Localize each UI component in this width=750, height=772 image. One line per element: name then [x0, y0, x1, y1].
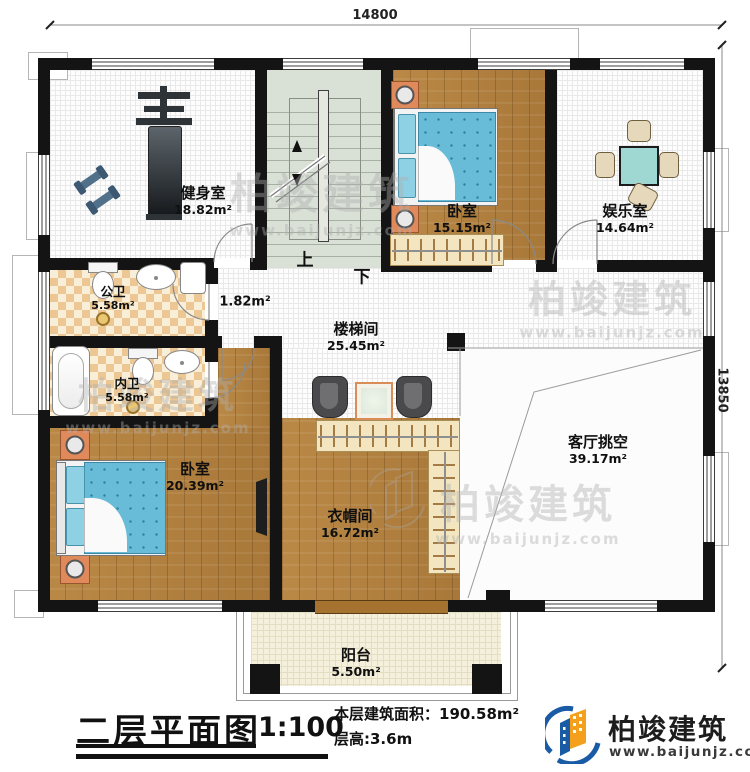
plan-scale: 1:100	[258, 712, 344, 743]
room-name: 衣帽间	[321, 508, 379, 526]
room-name: 娱乐室	[596, 203, 654, 221]
game-table	[619, 146, 659, 186]
nightstand	[391, 205, 419, 233]
window-bay-top	[478, 58, 570, 70]
room-label-bedroom-main: 卧室 20.39m²	[166, 461, 224, 493]
tv-icon	[256, 478, 267, 536]
lamp-icon	[96, 312, 110, 326]
brand-name-text: 柏竣建筑	[608, 713, 728, 746]
wall-gym-bottom-b	[250, 258, 267, 270]
column-corridor-void	[447, 333, 465, 351]
window-gym-top	[92, 58, 214, 70]
stair-down-label: 下	[354, 263, 371, 288]
brand-site-text: www.baijunjz.com	[609, 744, 750, 760]
lounge-chair	[312, 376, 348, 418]
wall-privbath-right-a	[205, 348, 218, 362]
window-ent-top	[600, 58, 684, 70]
room-label-public-bath: 公卫 5.58m²	[91, 285, 134, 313]
wall-pubbath-right-b	[205, 320, 218, 336]
room-area: 16.72m²	[321, 525, 379, 540]
bay-window-top	[470, 28, 579, 62]
pillow	[66, 466, 85, 504]
title-underline-2	[76, 754, 328, 759]
balcony-door-threshold	[315, 600, 448, 614]
title-underline-1	[76, 744, 256, 748]
dim-tick	[718, 21, 726, 29]
room-area: 5.50m²	[331, 664, 380, 679]
dim-tick	[718, 41, 726, 49]
treadmill-bar-1	[138, 92, 190, 99]
room-name: 健身室	[174, 185, 232, 203]
pillow	[398, 114, 416, 154]
room-name: 卧室	[433, 203, 491, 221]
floor-height-text: 层高:3.6m	[334, 730, 412, 748]
wall-bedroom-ent	[545, 70, 557, 272]
window-void-bottom	[545, 600, 657, 612]
room-label-hall-nook: 1.82m²	[219, 294, 270, 309]
lounge-chair	[396, 376, 432, 418]
room-label-bedroom-top: 卧室 15.15m²	[433, 203, 491, 235]
window-sill-right-void	[713, 452, 729, 546]
room-name: 卧室	[166, 461, 224, 479]
floor-area-info: 本层建筑面积：190.58m²	[334, 703, 519, 724]
dim-tick	[718, 664, 726, 672]
room-area: 1.82m²	[219, 294, 270, 309]
pillow	[398, 158, 416, 198]
floor-plan-canvas: 上 下	[0, 0, 750, 772]
column-balcony-left	[250, 664, 280, 694]
room-label-balcony: 阳台 5.50m²	[331, 647, 380, 679]
room-name: 公卫	[91, 285, 134, 300]
closet-bedroom-top	[390, 234, 504, 266]
window-ent-right	[703, 152, 715, 228]
room-label-gym: 健身室 18.82m²	[174, 185, 232, 217]
closet-rail	[318, 436, 458, 438]
room-label-cloakroom: 衣帽间 16.72m²	[321, 508, 379, 540]
dim-height-text: 13850	[715, 367, 730, 412]
plan-scale-text: 1:100	[258, 712, 344, 743]
window-void-right	[703, 456, 715, 542]
dim-width-text: 14800	[352, 8, 397, 23]
sink-icon	[136, 264, 176, 290]
room-name: 楼梯间	[327, 321, 385, 339]
window-bath-left	[38, 272, 50, 410]
wall-hall-top-a	[205, 336, 222, 348]
room-label-stair-hall: 楼梯间 25.45m²	[327, 321, 385, 353]
wall-privbath-right-b	[205, 398, 218, 416]
dimension-height-label: 13850	[715, 367, 730, 412]
wall-hall-corridor	[270, 348, 282, 418]
window-stairs-top	[283, 58, 363, 70]
side-table	[355, 382, 393, 420]
dim-tick	[46, 21, 54, 29]
stair-up-label: 上	[297, 246, 314, 271]
stair-up-text: 上	[297, 251, 314, 271]
chair	[595, 152, 615, 178]
bathtub-icon	[52, 346, 90, 416]
chair	[627, 120, 651, 142]
window-corridor-right	[703, 282, 715, 336]
room-name: 内卫	[105, 377, 148, 392]
wall-pubbath-right-a	[205, 268, 218, 284]
room-area: 18.82m²	[174, 202, 232, 217]
bidet-icon	[180, 262, 206, 294]
wall-hall-top-b	[254, 336, 282, 348]
column-bottom-void	[486, 590, 510, 612]
room-area: 5.58m²	[91, 300, 134, 313]
window-gym-left	[38, 155, 50, 235]
room-label-entertainment: 娱乐室 14.64m²	[596, 203, 654, 235]
floor-living-void	[460, 348, 703, 602]
bed-headboard	[56, 462, 66, 554]
nightstand	[60, 430, 90, 460]
room-area: 20.39m²	[166, 478, 224, 493]
wall-gym-stairs	[255, 70, 267, 268]
room-area: 14.64m²	[596, 220, 654, 235]
column-balcony-right	[472, 664, 502, 694]
brand-logo-icon	[545, 702, 603, 764]
treadmill-bar-2	[144, 106, 184, 112]
brand-name: 柏竣建筑	[608, 708, 728, 748]
wall-bath-bedroom	[38, 416, 218, 428]
treadmill-bar-3	[136, 118, 192, 125]
floor-area-text: 本层建筑面积：190.58m²	[334, 705, 519, 723]
nightstand	[60, 554, 90, 584]
nightstand	[391, 81, 419, 109]
floor-height-info: 层高:3.6m	[334, 728, 412, 749]
floor-hall-strip	[218, 348, 270, 428]
cloak-rack-top	[316, 420, 460, 452]
room-area: 5.58m²	[105, 392, 148, 405]
brand-site: www.baijunjz.com	[609, 744, 750, 760]
dimension-width-label: 14800	[352, 8, 397, 23]
room-area: 39.17m²	[568, 451, 628, 466]
chair	[659, 152, 679, 178]
window-sill-right-ent	[713, 148, 729, 232]
cloak-rack-right	[428, 450, 460, 574]
stair-rail	[318, 90, 329, 242]
room-label-living-void: 客厅挑空 39.17m²	[568, 434, 628, 466]
window-bedroom-bottom	[98, 600, 222, 612]
room-area: 25.45m²	[327, 338, 385, 353]
wall-bedroom-cloak	[270, 418, 282, 602]
stair-down-text: 下	[354, 268, 371, 288]
sink-icon-2	[164, 350, 200, 374]
closet-rail	[392, 250, 502, 252]
room-name: 客厅挑空	[568, 434, 628, 452]
room-area: 15.15m²	[433, 220, 491, 235]
room-label-private-bath: 内卫 5.58m²	[105, 377, 148, 405]
room-name: 阳台	[331, 647, 380, 665]
wall-ent-bottom	[597, 260, 703, 272]
closet-rail	[444, 452, 446, 572]
pillow	[66, 508, 85, 546]
